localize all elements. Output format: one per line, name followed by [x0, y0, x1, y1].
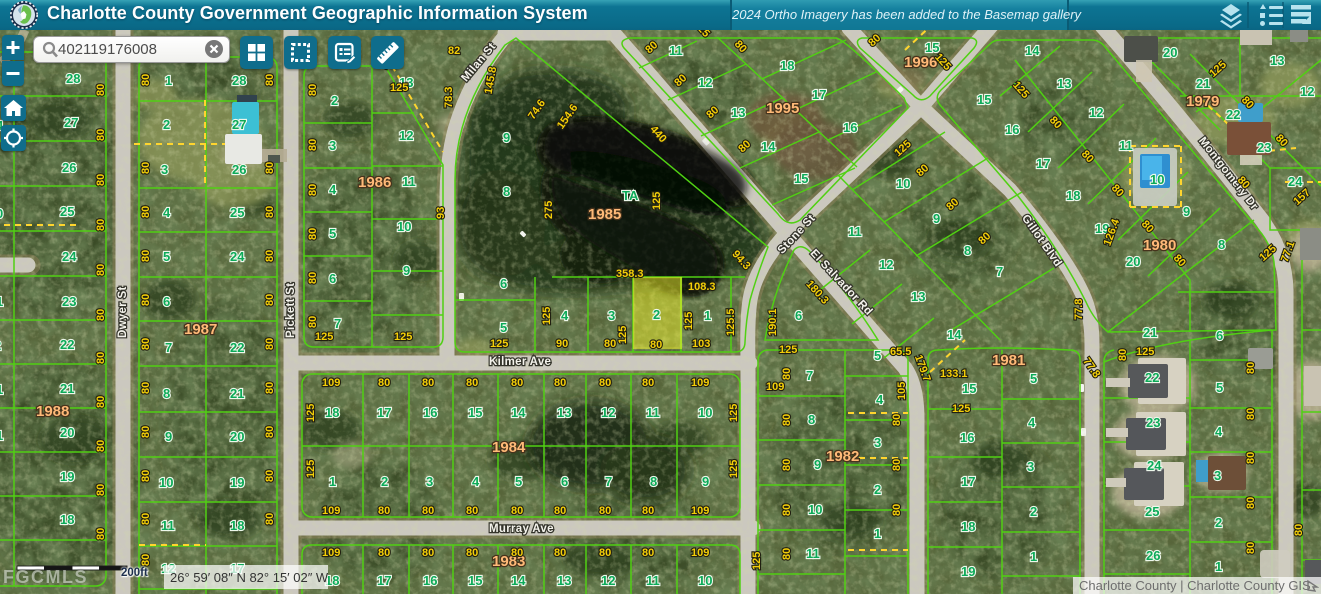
svg-text:14: 14	[511, 573, 526, 588]
svg-text:108.3: 108.3	[688, 281, 716, 293]
svg-text:1981: 1981	[992, 352, 1025, 369]
svg-text:6: 6	[561, 474, 568, 489]
svg-text:125: 125	[651, 192, 663, 210]
svg-text:25: 25	[230, 205, 244, 220]
svg-text:12: 12	[399, 128, 413, 143]
svg-text:1985: 1985	[588, 206, 621, 223]
svg-text:8: 8	[163, 386, 170, 401]
svg-text:125: 125	[1136, 346, 1154, 358]
svg-text:20: 20	[1163, 45, 1177, 60]
svg-text:80: 80	[604, 338, 616, 350]
svg-text:105: 105	[896, 382, 908, 400]
svg-text:125: 125	[779, 344, 797, 356]
svg-text:14: 14	[761, 139, 776, 154]
svg-text:80: 80	[264, 426, 276, 438]
svg-text:80: 80	[140, 206, 152, 218]
svg-text:4: 4	[1028, 415, 1036, 430]
svg-text:80: 80	[95, 484, 107, 496]
svg-text:9: 9	[503, 130, 510, 145]
svg-text:Kilmer Ave: Kilmer Ave	[489, 356, 551, 368]
svg-text:3: 3	[1027, 459, 1034, 474]
svg-text:2: 2	[653, 307, 660, 322]
svg-text:80: 80	[554, 505, 566, 517]
svg-text:9: 9	[165, 429, 172, 444]
svg-text:2: 2	[1030, 504, 1037, 519]
svg-text:80: 80	[781, 414, 793, 426]
svg-text:1982: 1982	[826, 448, 859, 465]
svg-text:13: 13	[557, 573, 571, 588]
svg-text:7: 7	[996, 264, 1003, 279]
svg-text:125: 125	[394, 331, 412, 343]
svg-text:23: 23	[1146, 415, 1160, 430]
svg-text:19: 19	[60, 469, 74, 484]
svg-text:80: 80	[307, 84, 319, 96]
svg-text:1996: 1996	[904, 54, 937, 71]
svg-text:3: 3	[329, 138, 336, 153]
svg-text:6: 6	[163, 294, 170, 309]
svg-text:80: 80	[891, 459, 903, 471]
svg-text:80: 80	[264, 74, 276, 86]
svg-text:12: 12	[879, 257, 893, 272]
svg-text:5: 5	[874, 348, 881, 363]
svg-text:109: 109	[322, 505, 340, 517]
svg-text:20: 20	[60, 425, 74, 440]
svg-text:125: 125	[617, 326, 629, 344]
svg-text:80: 80	[642, 547, 654, 559]
svg-text:15: 15	[925, 40, 939, 55]
svg-text:80: 80	[95, 352, 107, 364]
svg-text:3: 3	[161, 162, 168, 177]
svg-text:109: 109	[691, 377, 709, 389]
svg-text:80: 80	[378, 377, 390, 389]
svg-text:5: 5	[163, 249, 170, 264]
svg-text:21: 21	[1196, 76, 1210, 91]
svg-text:11: 11	[161, 518, 175, 533]
svg-text:80: 80	[95, 129, 107, 141]
svg-text:1986: 1986	[358, 174, 391, 191]
svg-text:80: 80	[95, 264, 107, 276]
svg-text:80: 80	[466, 505, 478, 517]
svg-text:9: 9	[1183, 204, 1190, 219]
svg-text:17: 17	[812, 87, 826, 102]
svg-text:275: 275	[543, 201, 555, 219]
svg-text:1: 1	[1215, 559, 1222, 574]
svg-text:Murray Ave: Murray Ave	[489, 523, 554, 535]
svg-text:13: 13	[731, 105, 745, 120]
svg-text:80: 80	[466, 377, 478, 389]
svg-text:90: 90	[556, 338, 568, 350]
svg-text:14: 14	[947, 327, 962, 342]
svg-text:16: 16	[423, 573, 437, 588]
svg-text:27: 27	[64, 115, 78, 130]
svg-text:7: 7	[334, 316, 341, 331]
svg-text:80: 80	[307, 139, 319, 151]
svg-text:15: 15	[468, 405, 482, 420]
svg-text:2: 2	[0, 338, 1, 353]
svg-text:2: 2	[331, 93, 338, 108]
svg-text:5: 5	[515, 474, 522, 489]
svg-text:24: 24	[62, 249, 77, 264]
svg-text:4: 4	[1215, 424, 1223, 439]
svg-text:12: 12	[698, 75, 712, 90]
svg-text:12: 12	[601, 405, 615, 420]
svg-text:80: 80	[95, 309, 107, 321]
svg-text:77.8: 77.8	[1073, 299, 1085, 320]
svg-text:80: 80	[307, 184, 319, 196]
svg-text:6: 6	[329, 271, 336, 286]
svg-text:80: 80	[264, 382, 276, 394]
svg-text:190.1: 190.1	[767, 308, 779, 336]
svg-text:19: 19	[961, 564, 975, 579]
svg-text:5: 5	[1030, 371, 1037, 386]
svg-text:21: 21	[1143, 325, 1157, 340]
svg-text:80: 80	[1245, 497, 1257, 509]
svg-text:80: 80	[140, 513, 152, 525]
svg-text:65.5: 65.5	[890, 346, 911, 358]
svg-text:22: 22	[60, 337, 74, 352]
svg-text:25: 25	[1145, 504, 1159, 519]
svg-text:80: 80	[554, 547, 566, 559]
svg-text:24: 24	[1147, 458, 1162, 473]
svg-text:3: 3	[608, 308, 615, 323]
svg-text:22: 22	[1226, 107, 1240, 122]
svg-text:10: 10	[698, 573, 712, 588]
svg-text:8: 8	[964, 243, 971, 258]
svg-text:80: 80	[511, 505, 523, 517]
svg-text:80: 80	[642, 505, 654, 517]
svg-text:5: 5	[329, 226, 336, 241]
svg-text:2: 2	[1215, 515, 1222, 530]
svg-text:125.5: 125.5	[725, 308, 737, 336]
svg-text:25: 25	[60, 204, 74, 219]
svg-text:15: 15	[977, 92, 991, 107]
svg-text:80: 80	[891, 504, 903, 516]
svg-text:14: 14	[1025, 43, 1040, 58]
svg-text:80: 80	[1245, 542, 1257, 554]
svg-text:4: 4	[876, 392, 884, 407]
svg-text:80: 80	[599, 377, 611, 389]
svg-text:8: 8	[503, 184, 510, 199]
svg-text:80: 80	[264, 250, 276, 262]
svg-text:2: 2	[874, 482, 881, 497]
svg-text:17: 17	[1036, 156, 1050, 171]
svg-text:80: 80	[140, 426, 152, 438]
svg-text:125: 125	[390, 82, 408, 94]
svg-text:9: 9	[814, 457, 821, 472]
svg-text:80: 80	[1245, 452, 1257, 464]
svg-text:16: 16	[960, 430, 974, 445]
svg-text:26: 26	[1146, 548, 1160, 563]
svg-text:10: 10	[896, 176, 910, 191]
svg-text:80: 80	[95, 528, 107, 540]
svg-text:23: 23	[1257, 140, 1271, 155]
svg-text:13: 13	[1057, 76, 1071, 91]
svg-text:1: 1	[0, 428, 3, 443]
svg-text:125: 125	[305, 404, 317, 422]
svg-text:1987: 1987	[184, 321, 217, 338]
svg-text:6: 6	[1216, 328, 1223, 343]
svg-text:80: 80	[307, 228, 319, 240]
svg-text:7: 7	[605, 474, 612, 489]
svg-text:109: 109	[322, 547, 340, 559]
svg-text:80: 80	[307, 316, 319, 328]
svg-text:1988: 1988	[36, 403, 69, 420]
svg-text:80: 80	[642, 377, 654, 389]
svg-text:1: 1	[0, 294, 3, 309]
svg-text:80: 80	[378, 547, 390, 559]
svg-text:80: 80	[1245, 362, 1257, 374]
svg-text:125: 125	[541, 307, 553, 325]
svg-text:10: 10	[808, 502, 822, 517]
svg-text:16: 16	[423, 405, 437, 420]
svg-text:80: 80	[95, 84, 107, 96]
svg-text:125: 125	[315, 331, 333, 343]
svg-text:Pickett St: Pickett St	[285, 283, 297, 338]
svg-text:80: 80	[140, 250, 152, 262]
svg-text:80: 80	[1117, 349, 1129, 361]
svg-text:80: 80	[599, 547, 611, 559]
svg-text:0: 0	[0, 206, 3, 221]
svg-text:80: 80	[140, 382, 152, 394]
svg-text:80: 80	[422, 377, 434, 389]
svg-text:12: 12	[601, 573, 615, 588]
svg-text:19: 19	[230, 475, 244, 490]
svg-text:80: 80	[95, 219, 107, 231]
svg-text:1984: 1984	[492, 439, 526, 456]
svg-text:78.3: 78.3	[443, 87, 455, 108]
svg-text:80: 80	[554, 377, 566, 389]
svg-text:12: 12	[1300, 84, 1314, 99]
svg-text:18: 18	[961, 519, 975, 534]
svg-text:80: 80	[1293, 524, 1305, 536]
svg-text:109: 109	[766, 381, 784, 393]
svg-text:80: 80	[95, 174, 107, 186]
svg-text:14: 14	[511, 405, 526, 420]
svg-text:80: 80	[781, 368, 793, 380]
svg-text:80: 80	[264, 162, 276, 174]
svg-text:80: 80	[264, 338, 276, 350]
svg-text:1: 1	[165, 73, 172, 88]
svg-text:4: 4	[163, 205, 171, 220]
svg-text:80: 80	[422, 547, 434, 559]
svg-text:1979: 1979	[1186, 93, 1219, 110]
svg-text:11: 11	[646, 405, 660, 420]
svg-text:22: 22	[1145, 370, 1159, 385]
svg-text:10: 10	[397, 219, 411, 234]
svg-text:27: 27	[232, 117, 246, 132]
svg-text:1: 1	[0, 382, 3, 397]
svg-text:20: 20	[1126, 254, 1140, 269]
svg-text:9: 9	[403, 263, 410, 278]
svg-text:28: 28	[66, 71, 80, 86]
svg-text:80: 80	[264, 294, 276, 306]
svg-text:80: 80	[95, 440, 107, 452]
svg-text:11: 11	[402, 174, 416, 189]
svg-text:17: 17	[377, 573, 391, 588]
svg-text:17: 17	[961, 474, 975, 489]
svg-text:358.3: 358.3	[616, 268, 644, 280]
svg-text:6: 6	[795, 308, 802, 323]
svg-text:80: 80	[1245, 408, 1257, 420]
svg-text:11: 11	[669, 43, 683, 58]
svg-text:8: 8	[650, 474, 657, 489]
svg-text:15: 15	[468, 573, 482, 588]
svg-text:13: 13	[1270, 53, 1284, 68]
svg-text:16: 16	[843, 120, 857, 135]
svg-text:125: 125	[305, 460, 317, 478]
svg-text:28: 28	[232, 73, 246, 88]
svg-text:3: 3	[426, 474, 433, 489]
svg-text:109: 109	[691, 547, 709, 559]
svg-text:80: 80	[781, 504, 793, 516]
svg-text:26: 26	[232, 162, 246, 177]
svg-text:80: 80	[140, 294, 152, 306]
svg-text:80: 80	[264, 206, 276, 218]
svg-text:18: 18	[780, 58, 794, 73]
svg-text:7: 7	[165, 340, 172, 355]
svg-text:12: 12	[1089, 105, 1103, 120]
svg-text:23: 23	[62, 294, 76, 309]
svg-text:4: 4	[472, 474, 480, 489]
svg-text:80: 80	[466, 547, 478, 559]
svg-text:8: 8	[1218, 237, 1225, 252]
svg-text:133.1: 133.1	[940, 368, 968, 380]
svg-text:9: 9	[933, 211, 940, 226]
svg-text:80: 80	[307, 272, 319, 284]
svg-text:1: 1	[329, 474, 336, 489]
svg-text:18: 18	[60, 512, 74, 527]
svg-text:109: 109	[322, 377, 340, 389]
svg-text:26: 26	[62, 160, 76, 175]
svg-text:10: 10	[1150, 172, 1164, 187]
svg-text:80: 80	[140, 338, 152, 350]
svg-text:11: 11	[646, 573, 660, 588]
svg-text:Dwyer St: Dwyer St	[117, 286, 129, 338]
svg-text:125: 125	[728, 460, 740, 478]
svg-text:4: 4	[329, 182, 337, 197]
svg-text:20: 20	[230, 429, 244, 444]
svg-text:18: 18	[1066, 188, 1080, 203]
svg-text:1980: 1980	[1143, 237, 1176, 254]
svg-text:4: 4	[561, 308, 569, 323]
svg-text:80: 80	[264, 513, 276, 525]
svg-text:93: 93	[435, 207, 447, 219]
svg-text:80: 80	[378, 505, 390, 517]
svg-text:11: 11	[1119, 138, 1133, 153]
svg-text:125: 125	[952, 403, 970, 415]
svg-text:80: 80	[511, 547, 523, 559]
svg-text:103: 103	[692, 338, 710, 350]
svg-text:125: 125	[683, 312, 695, 330]
svg-text:21: 21	[60, 381, 74, 396]
svg-text:15: 15	[962, 381, 976, 396]
svg-text:80: 80	[140, 162, 152, 174]
svg-text:82: 82	[448, 45, 460, 57]
svg-text:80: 80	[264, 470, 276, 482]
svg-text:3: 3	[874, 435, 881, 450]
svg-text:22: 22	[230, 340, 244, 355]
svg-text:11: 11	[806, 546, 820, 561]
svg-text:1: 1	[1030, 549, 1037, 564]
svg-text:18: 18	[325, 405, 339, 420]
svg-text:18: 18	[230, 518, 244, 533]
svg-text:8: 8	[808, 412, 815, 427]
svg-text:80: 80	[781, 548, 793, 560]
svg-text:5: 5	[1216, 380, 1223, 395]
svg-text:80: 80	[781, 459, 793, 471]
svg-text:3: 3	[1214, 468, 1221, 483]
svg-text:125: 125	[751, 552, 763, 570]
svg-text:15: 15	[794, 171, 808, 186]
svg-text:1: 1	[704, 308, 711, 323]
svg-text:5: 5	[500, 320, 507, 335]
svg-text:16: 16	[1005, 122, 1019, 137]
svg-text:10: 10	[698, 405, 712, 420]
svg-text:21: 21	[230, 386, 244, 401]
svg-text:80: 80	[95, 396, 107, 408]
svg-text:6: 6	[500, 276, 507, 291]
svg-text:17: 17	[377, 405, 391, 420]
svg-text:109: 109	[691, 505, 709, 517]
svg-text:1: 1	[874, 526, 881, 541]
svg-text:80: 80	[140, 74, 152, 86]
svg-text:10: 10	[159, 475, 173, 490]
svg-text:13: 13	[911, 289, 925, 304]
svg-text:80: 80	[511, 377, 523, 389]
svg-text:80: 80	[650, 339, 662, 351]
svg-text:80: 80	[422, 505, 434, 517]
svg-text:9: 9	[702, 474, 709, 489]
svg-text:7: 7	[806, 368, 813, 383]
svg-text:2: 2	[381, 474, 388, 489]
svg-text:1995: 1995	[766, 100, 799, 117]
svg-text:13: 13	[557, 405, 571, 420]
svg-text:80: 80	[599, 505, 611, 517]
svg-text:TA: TA	[622, 188, 639, 203]
svg-text:125: 125	[490, 338, 508, 350]
svg-text:24: 24	[1288, 174, 1303, 189]
svg-text:80: 80	[891, 414, 903, 426]
svg-text:125: 125	[728, 404, 740, 422]
svg-text:2: 2	[163, 117, 170, 132]
svg-text:80: 80	[140, 470, 152, 482]
svg-text:24: 24	[230, 249, 245, 264]
svg-text:11: 11	[848, 224, 862, 239]
